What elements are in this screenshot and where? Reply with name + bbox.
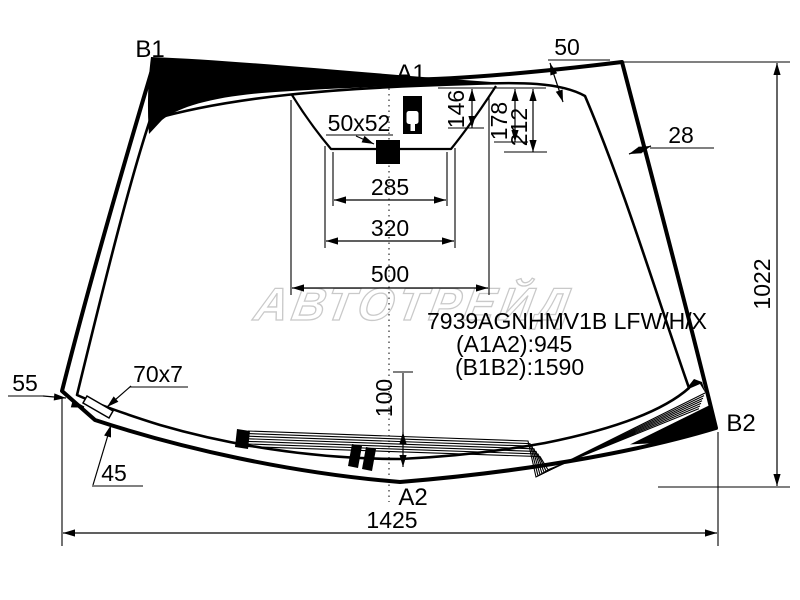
dim-320-text: 320 <box>371 215 409 241</box>
dim-1022-text: 1022 <box>749 258 775 309</box>
dim-146-text: 146 <box>443 90 469 128</box>
dim-55-text: 55 <box>12 370 38 396</box>
label-b1: B1 <box>135 36 164 63</box>
dim-500-text: 500 <box>371 261 409 287</box>
dim-285-text: 285 <box>371 174 409 200</box>
label-b2: B2 <box>726 410 755 437</box>
label-a1: A1 <box>396 60 425 87</box>
dim-212-text: 212 <box>506 108 532 146</box>
dim-28-text: 28 <box>668 122 694 148</box>
dim-70x7-text: 70x7 <box>133 361 183 387</box>
dim-50x52-text: 50x52 <box>328 110 391 136</box>
windshield-technical-drawing: АВТОТРЕЙД <box>0 0 800 600</box>
dim-50-text: 50 <box>554 34 580 60</box>
dim-45-text: 45 <box>101 460 127 486</box>
rain-sensor-icon <box>407 111 419 124</box>
mirror-mount-pad <box>376 140 400 164</box>
diagram-canvas: АВТОТРЕЙД <box>0 0 800 600</box>
part-b1b2: (B1B2):1590 <box>455 354 584 380</box>
dim-100-text: 100 <box>371 379 397 417</box>
dim-1425-text: 1425 <box>366 507 417 533</box>
rain-sensor-stem <box>411 124 416 131</box>
